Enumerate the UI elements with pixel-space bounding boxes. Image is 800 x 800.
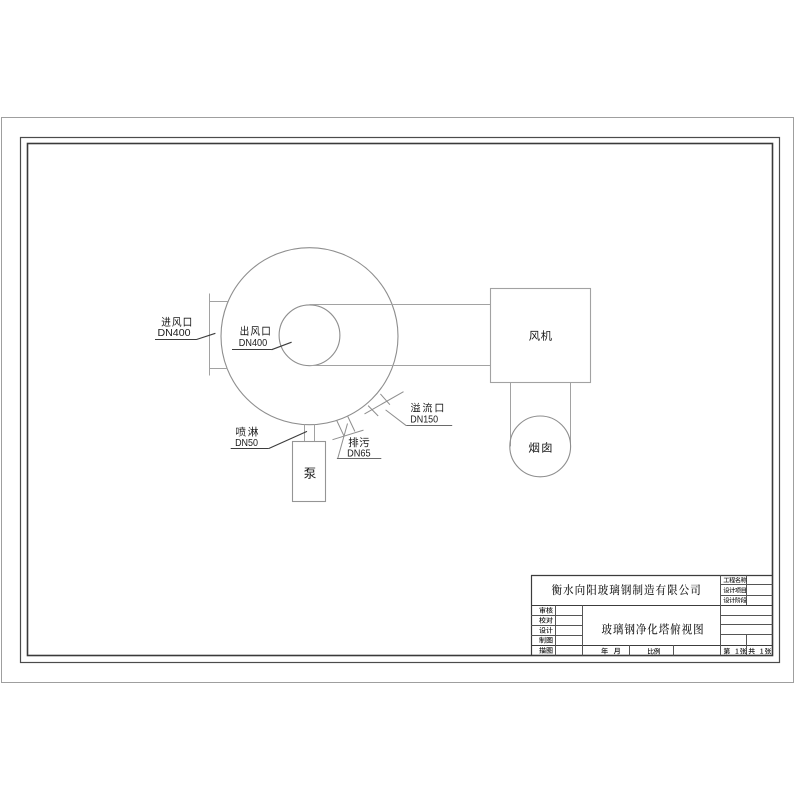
svg-text:DN65: DN65	[347, 447, 371, 459]
svg-text:DN400: DN400	[239, 337, 268, 349]
svg-text:DN150: DN150	[410, 413, 438, 425]
svg-text:DN50: DN50	[235, 437, 258, 449]
svg-text:DN400: DN400	[158, 327, 191, 339]
